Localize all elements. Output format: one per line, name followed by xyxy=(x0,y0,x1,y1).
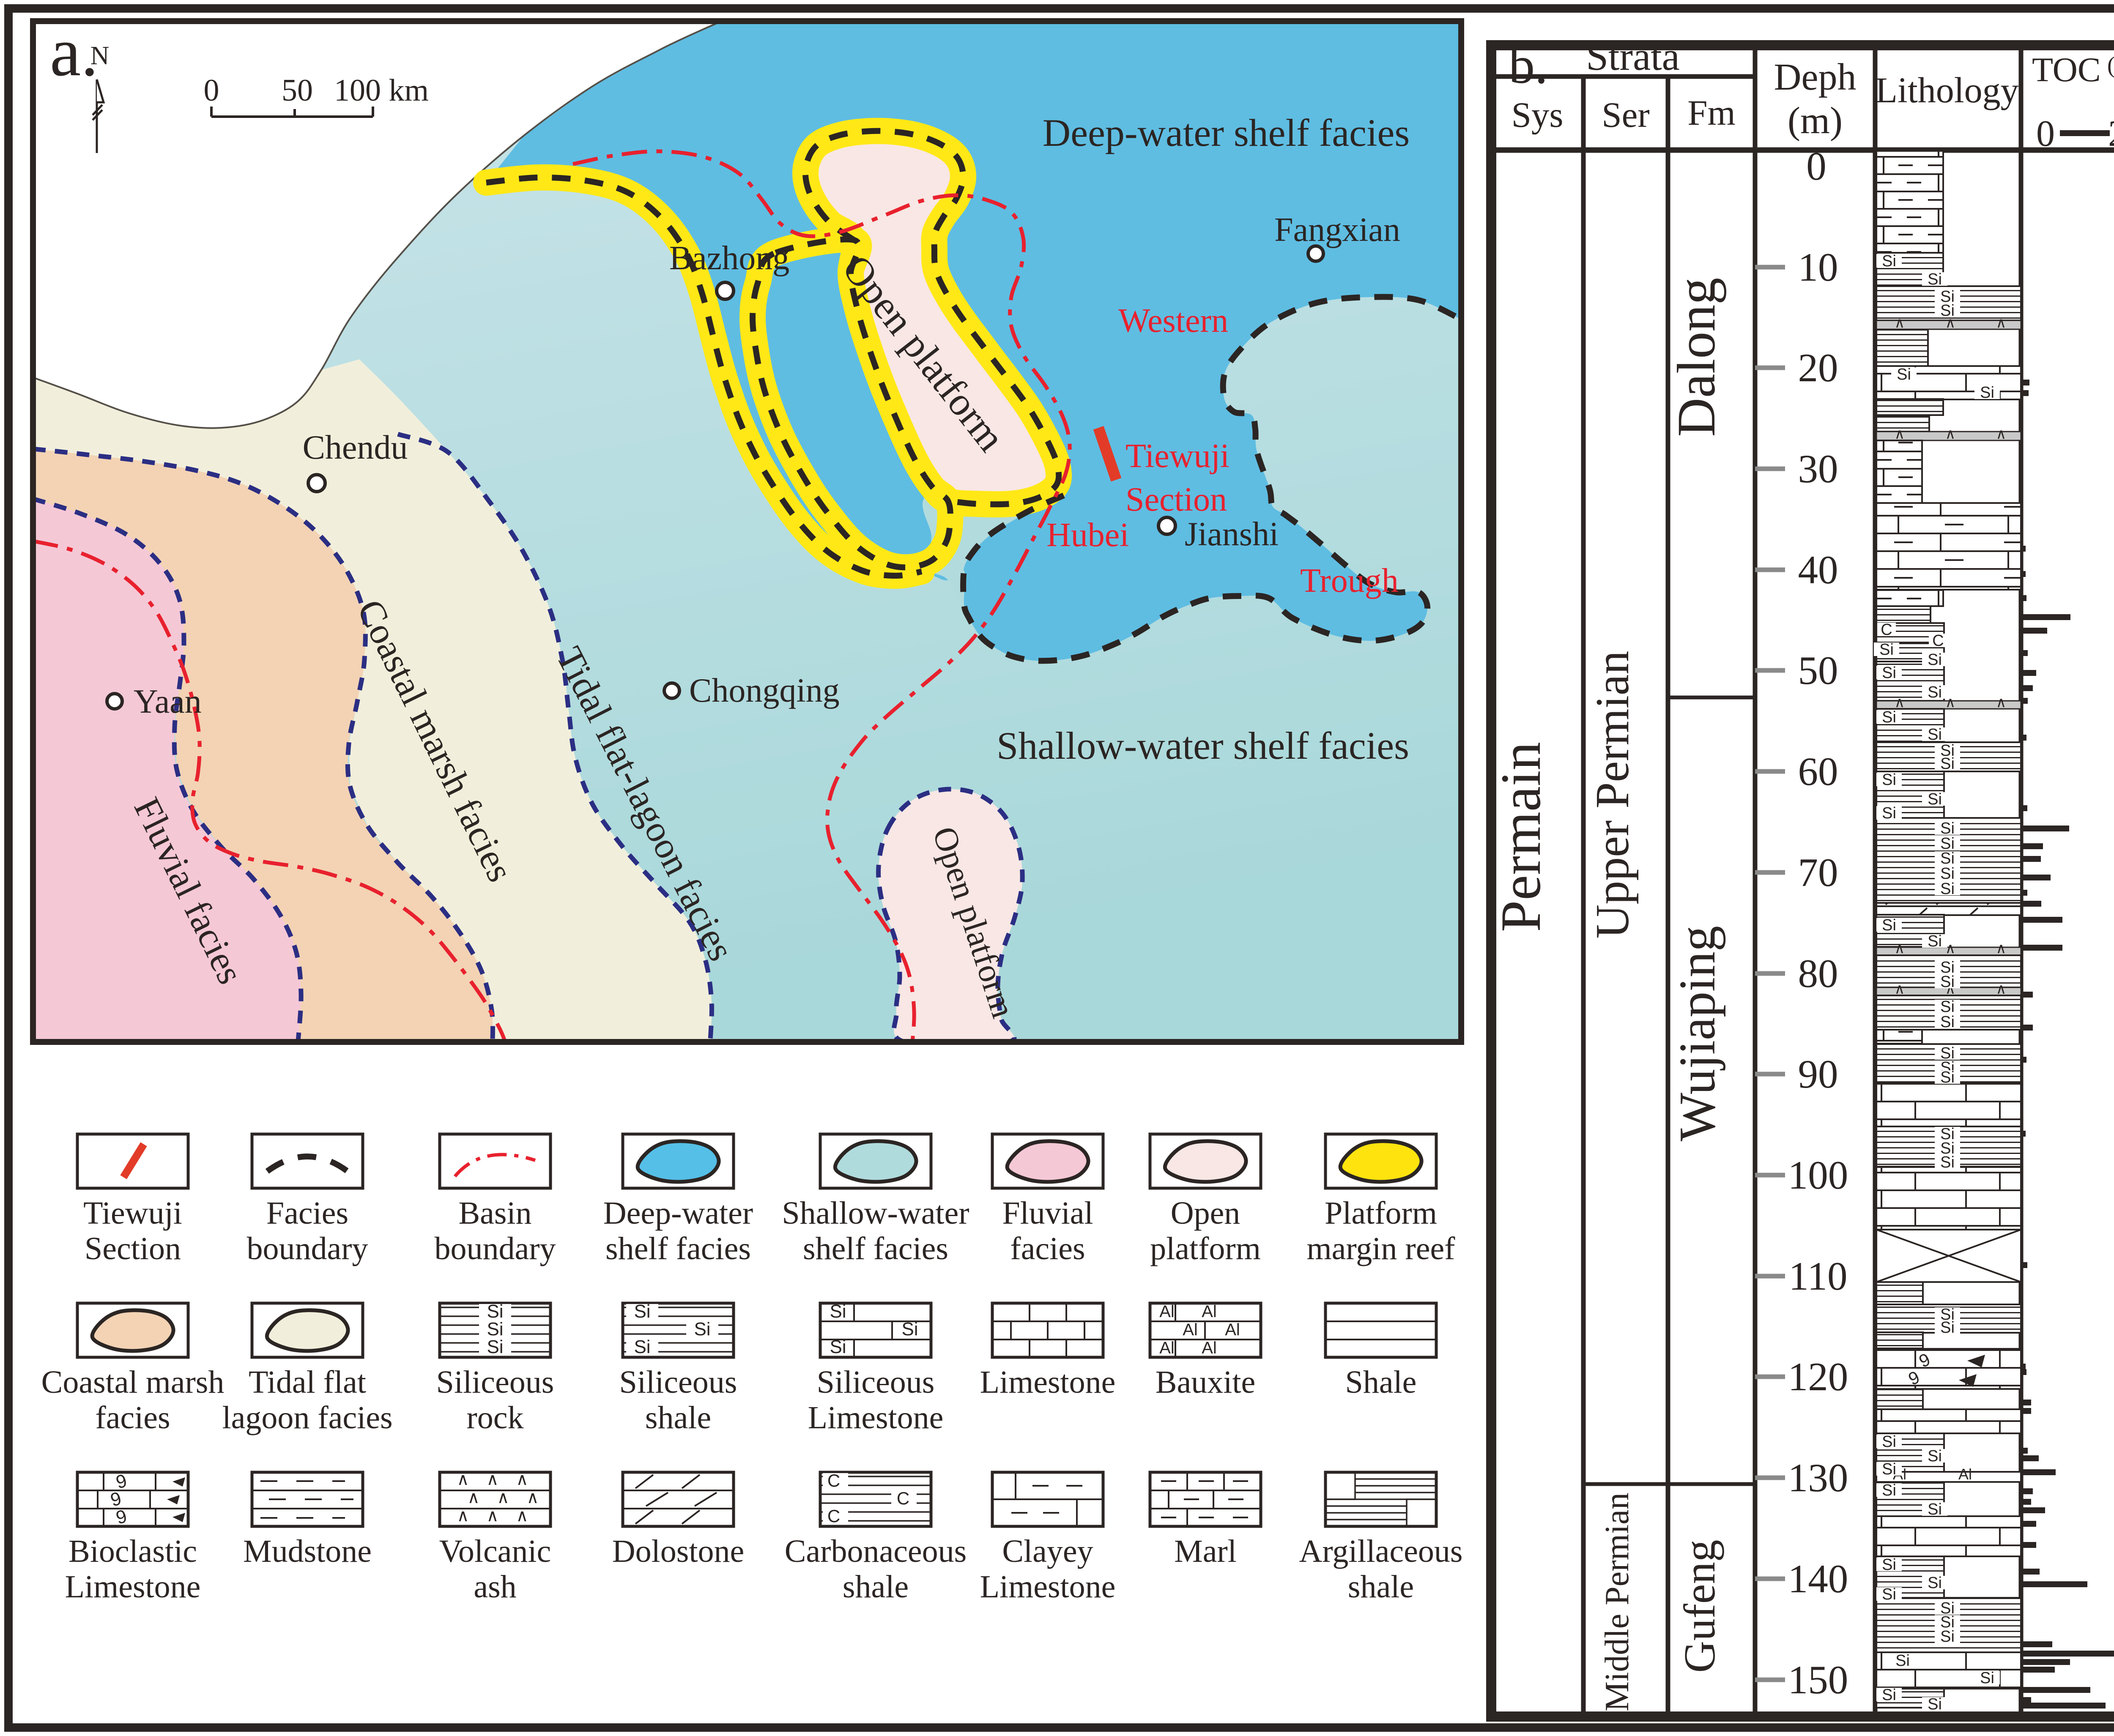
svg-text:shale: shale xyxy=(1348,1569,1414,1605)
svg-text:Si: Si xyxy=(901,1319,918,1340)
svg-text:Si: Si xyxy=(694,1319,710,1340)
svg-text:0: 0 xyxy=(204,73,219,108)
svg-text:Coastal marsh: Coastal marsh xyxy=(41,1364,225,1400)
svg-text:Open: Open xyxy=(1171,1195,1240,1231)
svg-text:(%): (%) xyxy=(2107,52,2114,78)
svg-text:∧: ∧ xyxy=(486,1506,498,1525)
svg-text:Si: Si xyxy=(1940,755,1955,773)
svg-text:Al: Al xyxy=(1225,1320,1240,1339)
svg-text:Al: Al xyxy=(1958,1465,1972,1483)
svg-text:Fluvial: Fluvial xyxy=(1002,1195,1093,1231)
svg-text:Marl: Marl xyxy=(1174,1534,1237,1569)
svg-text:130: 130 xyxy=(1788,1455,1848,1500)
svg-text:(m): (m) xyxy=(1788,100,1843,142)
svg-text:TOC: TOC xyxy=(2032,50,2101,89)
svg-text:Facies: Facies xyxy=(266,1195,348,1231)
svg-text:∧: ∧ xyxy=(1895,940,1905,957)
svg-text:Si: Si xyxy=(487,1337,503,1357)
svg-text:Si: Si xyxy=(1928,1695,1942,1713)
svg-text:Upper Permian: Upper Permian xyxy=(1586,651,1639,938)
svg-text:Si: Si xyxy=(1882,804,1896,822)
svg-text:0: 0 xyxy=(2036,113,2055,154)
svg-text:Siliceous: Siliceous xyxy=(817,1364,935,1400)
svg-text:Si: Si xyxy=(634,1337,650,1357)
svg-text:lagoon facies: lagoon facies xyxy=(222,1400,392,1435)
svg-text:Strata: Strata xyxy=(1586,34,1680,79)
svg-text:Bauxite: Bauxite xyxy=(1156,1364,1255,1400)
svg-text:∧: ∧ xyxy=(526,1488,539,1507)
svg-text:Si: Si xyxy=(1882,1460,1896,1478)
svg-text:Dolostone: Dolostone xyxy=(612,1534,744,1569)
svg-text:∧: ∧ xyxy=(457,1506,469,1525)
svg-text:Trough: Trough xyxy=(1300,562,1399,599)
svg-text:50: 50 xyxy=(282,73,313,108)
svg-text:platform: platform xyxy=(1150,1231,1261,1266)
svg-text:Si: Si xyxy=(1882,1586,1896,1603)
svg-text:Siliceous: Siliceous xyxy=(436,1364,554,1400)
svg-text:∧: ∧ xyxy=(1996,694,2007,711)
svg-text:∧: ∧ xyxy=(1996,426,2007,442)
svg-text:Si: Si xyxy=(1882,1433,1896,1451)
svg-text:Si: Si xyxy=(1928,1447,1942,1465)
svg-text:Si: Si xyxy=(1928,651,1942,669)
svg-text:Limestone: Limestone xyxy=(808,1400,944,1435)
svg-text:∧: ∧ xyxy=(1945,426,1956,442)
svg-text:40: 40 xyxy=(1798,547,1838,592)
svg-text:Al: Al xyxy=(1159,1302,1175,1321)
svg-text:Si: Si xyxy=(1940,880,1955,898)
svg-text:Hubei: Hubei xyxy=(1046,517,1129,554)
svg-text:Carbonaceous: Carbonaceous xyxy=(785,1534,967,1569)
svg-text:shelf facies: shelf facies xyxy=(605,1231,751,1266)
svg-text:Ser: Ser xyxy=(1602,95,1649,135)
svg-text:Deph: Deph xyxy=(1774,56,1857,98)
svg-text:Middle Permian: Middle Permian xyxy=(1599,1493,1636,1711)
svg-text:20: 20 xyxy=(2108,113,2114,154)
svg-text:Al: Al xyxy=(1202,1302,1217,1321)
svg-text:C: C xyxy=(1881,621,1892,639)
svg-text:Si: Si xyxy=(1882,916,1896,934)
svg-text:Si: Si xyxy=(1928,932,1942,950)
svg-text:Shallow-water shelf facies: Shallow-water shelf facies xyxy=(997,724,1409,767)
svg-text:50: 50 xyxy=(1798,648,1838,693)
svg-text:150: 150 xyxy=(1788,1657,1848,1702)
svg-text:Si: Si xyxy=(1928,683,1942,701)
svg-text:120: 120 xyxy=(1788,1354,1848,1399)
svg-text:N: N xyxy=(90,41,110,70)
svg-text:30: 30 xyxy=(1798,446,1838,491)
svg-text:70: 70 xyxy=(1798,850,1838,895)
svg-text:Shale: Shale xyxy=(1345,1364,1417,1400)
svg-text:Si: Si xyxy=(1879,641,1894,659)
svg-text:Limestone: Limestone xyxy=(980,1364,1116,1400)
svg-text:Si: Si xyxy=(1928,271,1942,288)
svg-text:shelf facies: shelf facies xyxy=(803,1231,948,1266)
svg-text:∧: ∧ xyxy=(467,1488,479,1507)
svg-text:Section: Section xyxy=(1125,481,1227,518)
svg-text:Si: Si xyxy=(1940,1628,1955,1646)
svg-text:Si: Si xyxy=(1882,771,1896,789)
svg-text:90: 90 xyxy=(1798,1052,1838,1096)
svg-text:Si: Si xyxy=(1980,384,1994,402)
svg-text:∧: ∧ xyxy=(516,1506,528,1525)
svg-text:C: C xyxy=(1932,632,1944,650)
svg-text:facies: facies xyxy=(95,1400,170,1435)
svg-text:Si: Si xyxy=(1928,790,1942,808)
svg-text:Si: Si xyxy=(1940,973,1955,991)
svg-text:Jianshi: Jianshi xyxy=(1185,516,1279,553)
svg-text:Si: Si xyxy=(1882,1482,1896,1499)
svg-text:boundary: boundary xyxy=(246,1231,368,1266)
svg-text:∧: ∧ xyxy=(497,1488,509,1507)
svg-text:∧: ∧ xyxy=(1895,315,1905,331)
svg-text:Si: Si xyxy=(1980,1669,1994,1687)
svg-text:Dalong: Dalong xyxy=(1666,278,1726,437)
svg-text:Si: Si xyxy=(1940,1013,1955,1031)
svg-text:Chendu: Chendu xyxy=(303,429,408,466)
svg-text:110: 110 xyxy=(1789,1254,1848,1299)
svg-text:Volcanic: Volcanic xyxy=(439,1534,551,1569)
svg-text:∧: ∧ xyxy=(1996,315,2007,331)
svg-text:∧: ∧ xyxy=(516,1470,528,1489)
svg-text:60: 60 xyxy=(1798,749,1838,794)
svg-text:Lithology: Lithology xyxy=(1875,70,2018,110)
svg-text:Bioclastic: Bioclastic xyxy=(68,1534,197,1569)
svg-text:Permain: Permain xyxy=(1490,742,1553,932)
svg-text:Si: Si xyxy=(1897,366,1911,383)
svg-text:facies: facies xyxy=(1010,1231,1085,1266)
svg-text:Si: Si xyxy=(634,1301,650,1322)
svg-text:∧: ∧ xyxy=(486,1470,498,1489)
svg-text:Si: Si xyxy=(1882,708,1896,726)
svg-text:b.: b. xyxy=(1509,36,1548,94)
svg-text:Limestone: Limestone xyxy=(980,1569,1116,1605)
svg-text:20: 20 xyxy=(1798,345,1838,390)
svg-text:Tidal flat: Tidal flat xyxy=(249,1364,366,1400)
svg-text:Basin: Basin xyxy=(458,1195,531,1231)
svg-text:Si: Si xyxy=(1882,252,1896,270)
svg-text:Chongqing: Chongqing xyxy=(689,672,840,709)
svg-text:Si: Si xyxy=(1940,302,1955,320)
svg-text:Si: Si xyxy=(830,1301,846,1322)
svg-text:Shallow-water: Shallow-water xyxy=(782,1195,969,1231)
svg-text:Tiewuji: Tiewuji xyxy=(1125,437,1230,475)
svg-text:C: C xyxy=(897,1488,909,1508)
svg-text:Yaan: Yaan xyxy=(134,683,202,720)
svg-text:Platform: Platform xyxy=(1325,1195,1437,1231)
svg-text:C: C xyxy=(827,1506,840,1526)
svg-text:Si: Si xyxy=(1882,1686,1896,1704)
svg-text:Gufeng: Gufeng xyxy=(1675,1540,1724,1673)
svg-text:Sys: Sys xyxy=(1512,95,1564,135)
svg-text:Fm: Fm xyxy=(1687,93,1735,133)
svg-text:boundary: boundary xyxy=(434,1231,556,1266)
svg-text:ash: ash xyxy=(474,1569,516,1605)
svg-text:rock: rock xyxy=(466,1400,523,1435)
svg-text:0: 0 xyxy=(1806,144,1826,189)
svg-text:100: 100 xyxy=(1788,1153,1848,1197)
svg-text:Si: Si xyxy=(1928,1574,1942,1592)
svg-text:Mudstone: Mudstone xyxy=(243,1534,372,1569)
svg-text:Al: Al xyxy=(1159,1339,1175,1357)
svg-text:Deep-water: Deep-water xyxy=(603,1195,753,1231)
svg-text:∧: ∧ xyxy=(1996,940,2007,957)
svg-text:Si: Si xyxy=(830,1337,846,1357)
svg-text:Tiewuji: Tiewuji xyxy=(83,1195,182,1231)
svg-text:Al: Al xyxy=(1202,1339,1217,1357)
svg-text:100 km: 100 km xyxy=(334,73,429,108)
svg-text:margin reef: margin reef xyxy=(1307,1231,1456,1266)
svg-text:Fangxian: Fangxian xyxy=(1274,211,1400,249)
svg-text:Si: Si xyxy=(1940,1319,1955,1337)
svg-text:Argillaceous: Argillaceous xyxy=(1299,1534,1463,1569)
svg-text:Western: Western xyxy=(1118,302,1228,339)
svg-text:80: 80 xyxy=(1798,951,1838,996)
svg-text:Bazhong: Bazhong xyxy=(669,240,789,277)
svg-text:∧: ∧ xyxy=(457,1470,469,1489)
svg-text:shale: shale xyxy=(843,1569,909,1605)
svg-text:Al: Al xyxy=(1183,1320,1198,1339)
svg-text:C: C xyxy=(827,1471,840,1490)
svg-text:Si: Si xyxy=(1928,726,1942,744)
svg-text:140: 140 xyxy=(1788,1556,1848,1601)
svg-text:Si: Si xyxy=(1882,664,1896,682)
svg-text:10: 10 xyxy=(1798,245,1838,290)
svg-text:Deep-water shelf facies: Deep-water shelf facies xyxy=(1043,111,1410,154)
svg-text:Section: Section xyxy=(85,1231,181,1266)
svg-text:Wujiaping: Wujiaping xyxy=(1669,926,1726,1141)
svg-text:Siliceous: Siliceous xyxy=(619,1364,737,1400)
svg-text:Limestone: Limestone xyxy=(65,1569,201,1605)
svg-text:Si: Si xyxy=(1940,1154,1955,1171)
svg-text:Si: Si xyxy=(1940,1069,1955,1086)
svg-text:Clayey: Clayey xyxy=(1002,1534,1093,1569)
svg-text:Si: Si xyxy=(1882,1556,1896,1574)
svg-text:Si: Si xyxy=(1895,1652,1910,1670)
svg-text:shale: shale xyxy=(645,1400,711,1435)
svg-text:Si: Si xyxy=(1928,1501,1942,1518)
